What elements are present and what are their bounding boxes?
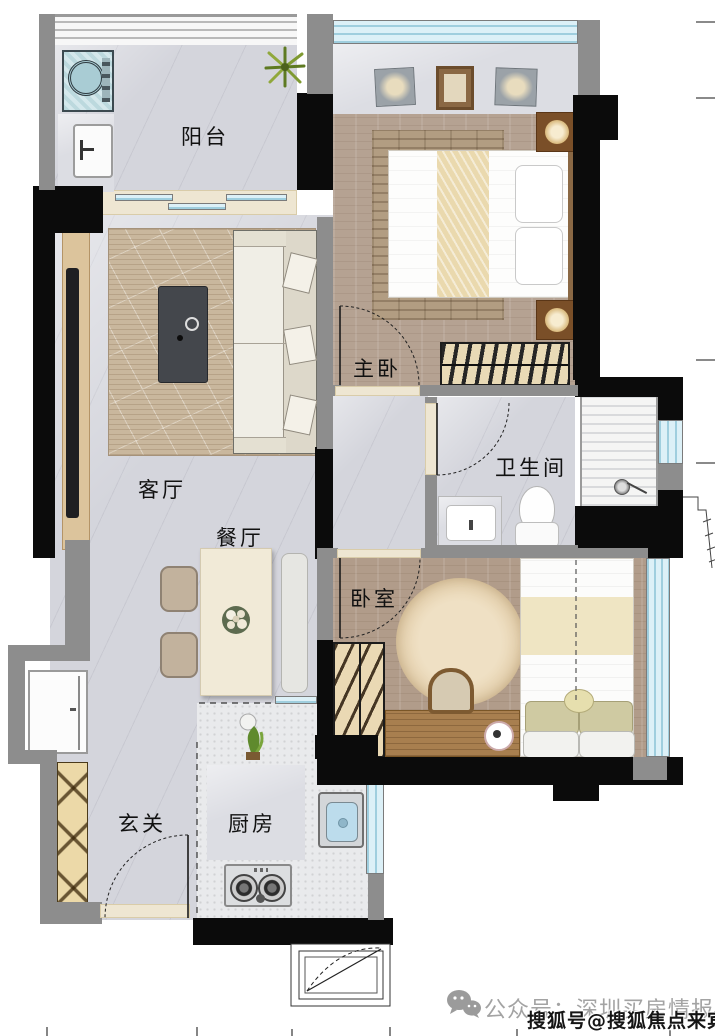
wall-segment [420, 385, 578, 396]
sofa-pillow [283, 325, 317, 365]
deco-box [436, 66, 474, 110]
leader-hatch [703, 519, 715, 562]
nightstand [536, 112, 578, 152]
shower-area [580, 395, 658, 508]
bed-runner [521, 597, 633, 655]
wall-segment [658, 462, 683, 490]
entrance-door-leaf [307, 949, 381, 991]
wall-segment [553, 783, 599, 801]
deco-pillow [494, 67, 537, 106]
sofa [233, 230, 317, 454]
deco-box-inner [444, 74, 466, 102]
wall-segment [421, 548, 648, 558]
washer-door [68, 60, 104, 96]
sink-basin [326, 802, 358, 842]
dining-bench [281, 553, 308, 693]
door-threshold [100, 904, 190, 918]
bed-pillow [515, 165, 563, 223]
dining-chair [160, 632, 198, 678]
nightstand [536, 300, 578, 340]
wall-segment [307, 14, 333, 94]
door-threshold [335, 386, 420, 396]
room-label-living-room: 客厅 [138, 474, 186, 504]
room-label-bedroom: 卧室 [350, 583, 398, 613]
kitchen-plant-icon [234, 712, 270, 762]
wall-segment [315, 735, 378, 759]
floor-plan: 阳台 主卧 客厅 餐厅 卫生间 卧室 玄关 厨房 公众号：深圳买房情报 搜狐号@… [0, 0, 715, 1036]
drain-icon [338, 818, 348, 828]
wall-segment [573, 95, 618, 140]
sliding-door-panel [115, 194, 173, 201]
stove [224, 864, 292, 907]
tv [66, 268, 79, 518]
entrance-outline [291, 944, 390, 1006]
vanity-sink [446, 505, 496, 541]
bolster-cushion [564, 689, 594, 713]
wall-segment [8, 645, 25, 763]
table-flower-icon [218, 602, 254, 638]
shoe-cabinet [57, 762, 88, 912]
faucet-icon [80, 140, 83, 160]
room-label-bathroom: 卫生间 [495, 452, 567, 482]
kitchen-sink [318, 792, 364, 848]
wall-segment [573, 138, 600, 380]
bed-pillow [515, 227, 563, 285]
desk [385, 710, 520, 757]
door-threshold [337, 549, 421, 558]
wall-segment [193, 918, 393, 945]
bed-pillow-white [523, 731, 579, 758]
bedroom-bed [520, 558, 634, 757]
lamp-icon [545, 120, 569, 144]
wall-segment [658, 377, 683, 422]
wechat-icon [446, 988, 482, 1020]
room-label-master-bedroom: 主卧 [353, 353, 401, 383]
appliance-niche [28, 670, 88, 754]
bed-bench [440, 342, 570, 386]
niche-door-line [78, 676, 80, 750]
wall-segment [65, 540, 90, 650]
entrance-door-arc [307, 948, 381, 991]
stove-knob [254, 868, 268, 872]
sliding-door-panel [168, 203, 226, 210]
sofa-seat-line [234, 343, 286, 344]
niche-handle [70, 708, 76, 711]
wall-segment [317, 217, 333, 449]
bed-runner [437, 151, 489, 297]
balcony-railing [55, 14, 297, 45]
wall-segment [658, 488, 683, 558]
balcony-sink [73, 124, 113, 178]
bedroom-window [646, 558, 670, 757]
entrance-outline [299, 951, 383, 999]
wall-segment [39, 14, 55, 190]
washer-controls [102, 58, 110, 102]
room-label-entry: 玄关 [118, 808, 166, 838]
burner-icon [230, 874, 258, 902]
dining-chair [160, 566, 198, 612]
master-bed [388, 150, 570, 298]
deco-pillow [374, 67, 416, 107]
room-label-kitchen: 厨房 [228, 808, 276, 838]
coffee-table [158, 286, 208, 383]
bed-pillow-white [579, 731, 635, 758]
sliding-door-panel [226, 194, 287, 201]
pass-through-window [275, 696, 317, 704]
leader-line [683, 497, 712, 568]
sofa-armrest [234, 437, 286, 453]
desk-chair [428, 668, 474, 714]
wall-segment [40, 902, 102, 924]
ornament-center [493, 730, 501, 738]
wall-segment [368, 874, 384, 920]
wall-segment [33, 217, 55, 558]
table-decor [177, 335, 183, 341]
wall-segment [297, 93, 333, 190]
watermark-sohu-text: 搜狐号@搜狐焦点来宾站 [527, 1006, 715, 1033]
dimension-tick [696, 22, 715, 463]
door-threshold [425, 403, 437, 475]
room-label-dining-room: 餐厅 [216, 522, 264, 552]
lamp-icon [545, 308, 569, 332]
washing-machine [62, 50, 114, 112]
bench-divider [442, 364, 568, 366]
hall-floor [333, 390, 428, 558]
wall-segment [315, 447, 333, 559]
bath-vanity [438, 496, 502, 546]
desk-ornament [484, 721, 514, 751]
wall-segment [317, 757, 683, 785]
sofa-armrest [234, 231, 286, 247]
wall-segment [40, 758, 57, 910]
master-window [333, 20, 578, 44]
kitchen-window [366, 782, 384, 874]
table-decor [185, 317, 199, 331]
entrance-outline [305, 957, 377, 993]
faucet-icon [469, 520, 473, 530]
wall-segment [317, 548, 333, 640]
shower-window [658, 420, 683, 464]
room-label-balcony: 阳台 [181, 121, 229, 151]
stove-knob [256, 894, 265, 903]
balcony-plant-icon [262, 44, 308, 90]
toilet [514, 486, 558, 548]
wall-segment [633, 757, 667, 780]
